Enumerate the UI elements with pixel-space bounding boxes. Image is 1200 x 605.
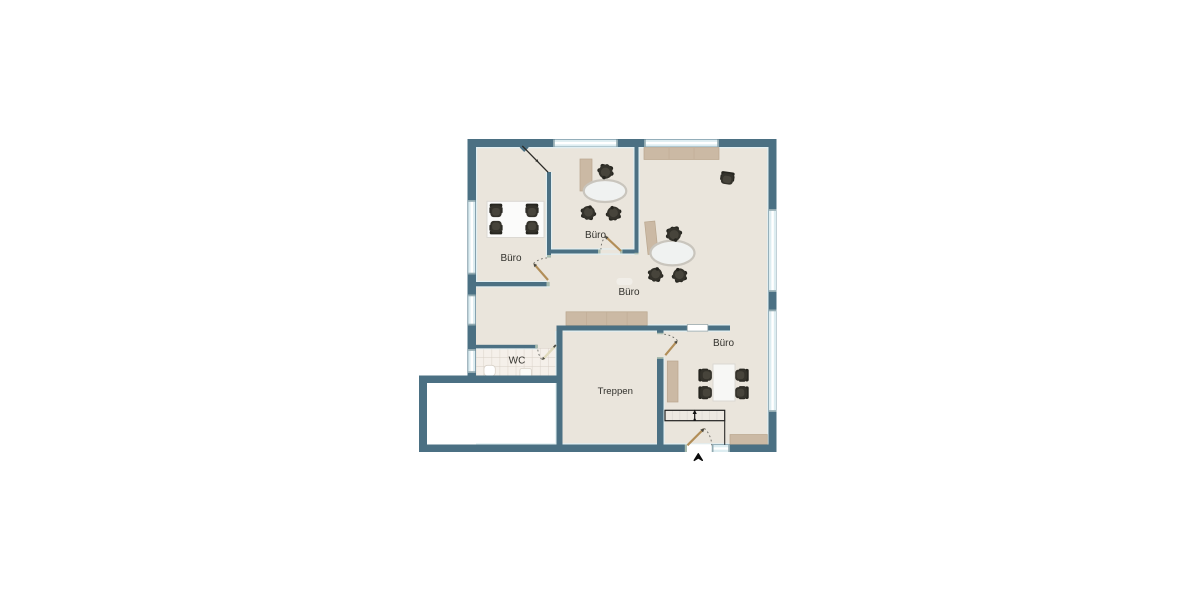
svg-text:Büro: Büro: [585, 230, 607, 241]
svg-text:Büro: Büro: [713, 338, 735, 349]
svg-text:Büro: Büro: [500, 253, 522, 264]
svg-text:Büro: Büro: [618, 287, 640, 298]
svg-text:Treppen: Treppen: [598, 386, 633, 397]
svg-text:WC: WC: [509, 356, 526, 367]
